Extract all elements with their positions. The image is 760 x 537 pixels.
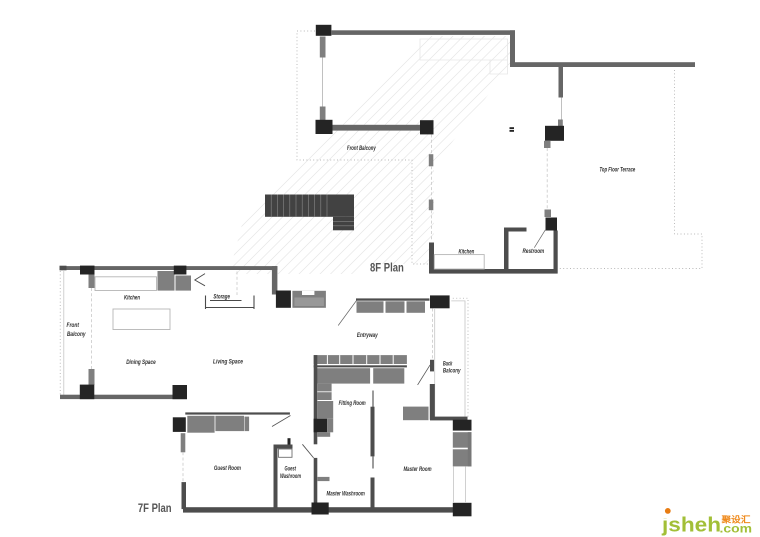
svg-text:Top Floor Terrace: Top Floor Terrace (600, 167, 636, 174)
svg-text:Front: Front (67, 322, 80, 329)
svg-text:7F Plan: 7F Plan (138, 501, 172, 515)
svg-text:Master Room: Master Room (404, 466, 432, 473)
svg-text:Restroom: Restroom (523, 248, 545, 255)
svg-text:8F Plan: 8F Plan (370, 261, 404, 275)
svg-text:Washroom: Washroom (280, 473, 301, 480)
svg-text:Balcony: Balcony (67, 331, 86, 338)
svg-text:Entryway: Entryway (357, 332, 378, 339)
svg-text:Guest: Guest (285, 466, 297, 473)
svg-text:Kitchen: Kitchen (459, 248, 475, 255)
svg-text:.com: .com (720, 522, 753, 536)
svg-text:Kitchen: Kitchen (124, 294, 140, 301)
svg-text:Fitting Room: Fitting Room (339, 400, 366, 407)
svg-text:Guest Room: Guest Room (214, 465, 241, 472)
svg-text:Living Space: Living Space (213, 359, 243, 366)
svg-text:Dining Space: Dining Space (126, 359, 156, 366)
svg-text:Front Balcony: Front Balcony (347, 145, 376, 152)
svg-text:jsheh: jsheh (661, 515, 721, 537)
svg-text:Storage: Storage (213, 294, 230, 301)
svg-text:Back: Back (443, 360, 453, 367)
svg-text:Master Washroom: Master Washroom (327, 491, 366, 498)
svg-text:Balcony: Balcony (443, 368, 461, 375)
